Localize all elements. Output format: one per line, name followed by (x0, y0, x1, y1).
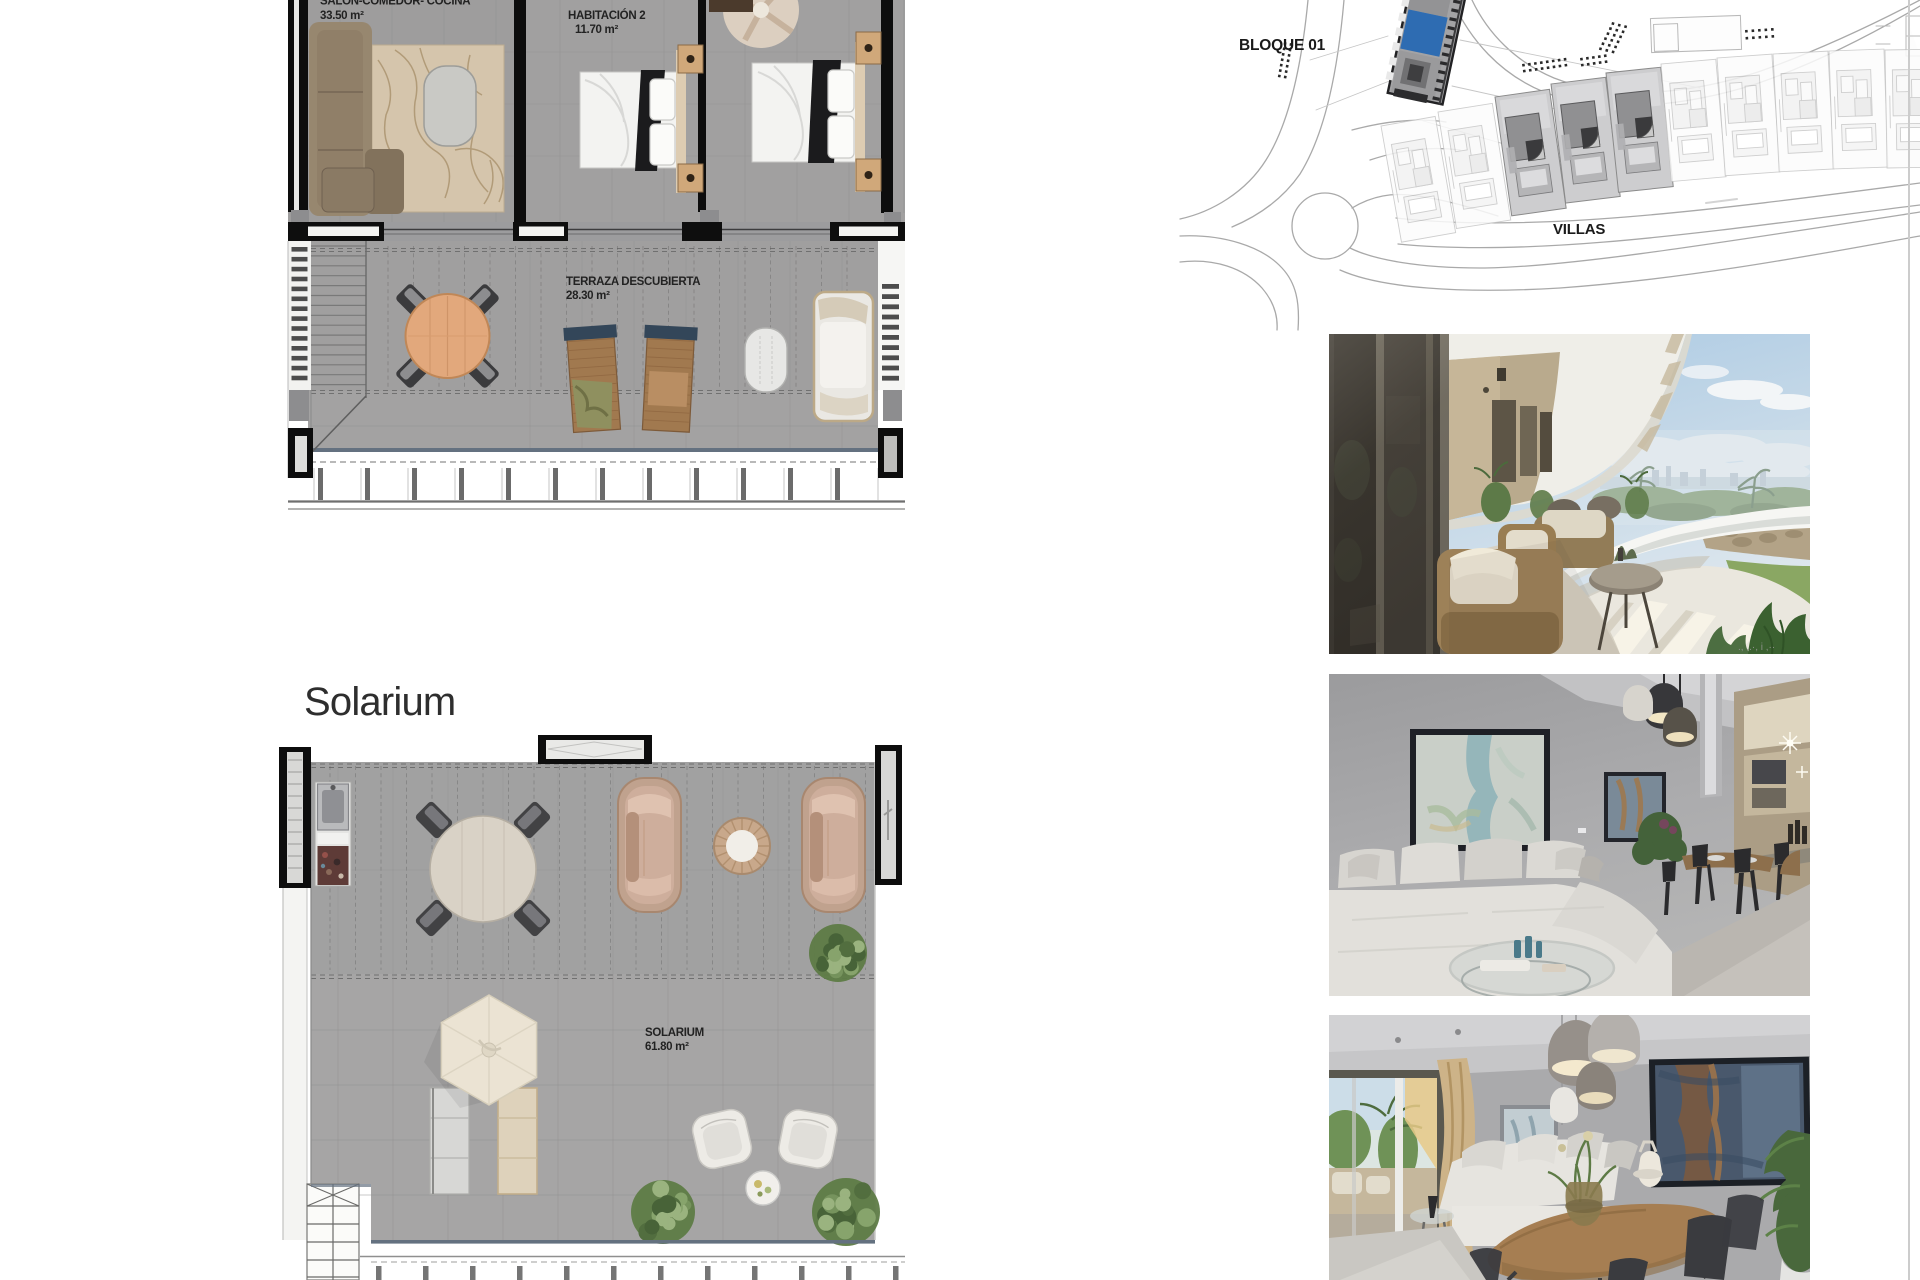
svg-text:VILLAS: VILLAS (1553, 221, 1605, 238)
svg-text:SOLARIUM: SOLARIUM (645, 1027, 704, 1039)
svg-text:HABITACIÓN 2: HABITACIÓN 2 (568, 9, 645, 22)
svg-text:28.30 m²: 28.30 m² (566, 290, 610, 302)
svg-text:TERRAZA DESCUBIERTA: TERRAZA DESCUBIERTA (566, 276, 700, 288)
svg-text:BLOQUE 01: BLOQUE 01 (1239, 37, 1326, 54)
svg-text:11.70 m²: 11.70 m² (575, 24, 618, 36)
svg-text:., ..·, i ,··: ., ..·, i ,·· (1738, 642, 1775, 653)
svg-text:SALON-COMEDOR- COCINA: SALON-COMEDOR- COCINA (320, 0, 470, 8)
svg-text:61.80 m²: 61.80 m² (645, 1041, 689, 1053)
svg-text:33.50 m²: 33.50 m² (320, 10, 364, 22)
svg-text:Solarium: Solarium (304, 680, 455, 724)
